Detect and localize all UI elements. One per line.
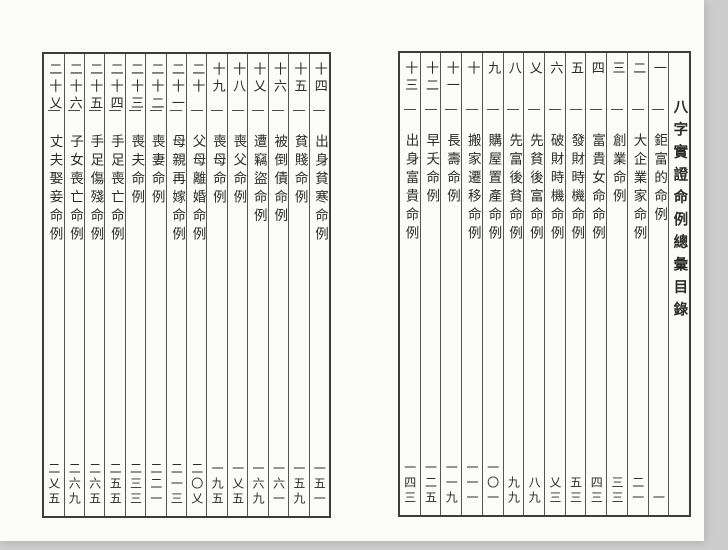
entry-chapter-number: 四	[590, 61, 603, 78]
entry-title: 喪母命例	[210, 134, 224, 208]
toc-page-right: 八字實證命例總彙目錄 一鉅富的命例一二大企業家命例二一三創業命例三三四富貴女命命…	[398, 51, 691, 517]
entry-page-number: 乂三	[549, 476, 561, 506]
entry-chapter-number: 十乂	[252, 62, 265, 96]
header-underline	[528, 109, 540, 110]
entry-title: 母親再嫁命例	[170, 134, 184, 245]
header-underline	[466, 109, 478, 110]
header-underline	[150, 110, 162, 111]
toc-entry-column: 二十四手足喪亡命例二五五	[104, 54, 124, 516]
entry-chapter-number: 八	[507, 61, 520, 78]
entry-chapter-number: 五	[569, 61, 582, 78]
entry-title: 先富後貧命例	[507, 133, 521, 244]
header-underline	[611, 109, 623, 110]
header-underline	[272, 110, 284, 111]
entry-chapter-number: 二十四	[109, 62, 122, 113]
toc-entry-column: 一鉅富的命例一	[648, 53, 669, 515]
header-underline	[170, 110, 182, 111]
header-underline	[425, 109, 437, 110]
header-underline	[313, 110, 325, 111]
toc-entry-column: 乂先貧後富命例八九	[523, 53, 544, 515]
toc-entry-column: 六破財時機命例乂三	[544, 53, 565, 515]
entry-title: 喪妻命例	[149, 134, 163, 208]
entry-title: 創業命例	[610, 133, 624, 207]
entry-title: 購屋置產命例	[486, 133, 500, 244]
toc-entry-column: 十搬家遷移命例一一一	[461, 53, 482, 515]
entry-chapter-number: 乂	[528, 61, 541, 78]
entry-title: 破財時機命例	[548, 133, 562, 244]
entry-title: 遭竊盜命例	[251, 134, 265, 227]
toc-entry-column: 二十六子女喪亡命例二六九	[64, 54, 84, 516]
entry-page-number: 一四三	[404, 461, 416, 506]
header-underline	[652, 109, 664, 110]
entry-chapter-number: 三	[610, 61, 623, 78]
entry-chapter-number: 十八	[231, 62, 244, 96]
entry-page-number: 一一一	[466, 461, 478, 506]
entry-page-number: 二三三	[129, 462, 141, 507]
header-underline	[404, 109, 416, 110]
toc-entry-column: 十一長壽命例一一九	[440, 53, 461, 515]
entry-page-number: 三三	[611, 476, 623, 506]
entry-page-number: 五三	[570, 476, 582, 506]
entry-title: 手足傷殘命例	[88, 134, 102, 245]
header-underline	[507, 109, 519, 110]
header-underline	[89, 110, 101, 111]
entry-title: 大企業家命例	[631, 133, 645, 244]
entry-chapter-number: 十一	[445, 61, 458, 95]
header-underline	[487, 109, 499, 110]
entry-chapter-number: 九	[486, 61, 499, 78]
entry-chapter-number: 二	[631, 61, 644, 78]
book-title-column: 八字實證命例總彙目錄	[668, 53, 689, 515]
header-underline	[445, 109, 457, 110]
toc-entry-column: 五發財時機命例五三	[565, 53, 586, 515]
entry-page-number: 一一九	[445, 461, 457, 506]
entry-page-number: 九九	[507, 476, 519, 506]
toc-entry-column: 二十三喪夫命例二三三	[125, 54, 145, 516]
entry-title: 喪父命例	[231, 134, 245, 208]
entry-title: 鉅富的命例	[652, 133, 666, 226]
header-underline	[632, 109, 644, 110]
entry-chapter-number: 六	[548, 61, 561, 78]
entry-page-number: 二一	[632, 476, 644, 506]
book-title: 八字實證命例總彙目錄	[672, 99, 687, 324]
entry-title: 出身貧寒命例	[313, 134, 327, 245]
toc-entry-column: 二十五手足傷殘命例二六五	[84, 54, 104, 516]
entry-page-number: 二二一	[150, 462, 162, 507]
header-underline	[129, 110, 141, 111]
entry-title: 發財時機命例	[569, 133, 583, 244]
toc-entry-column: 十四出身貧寒命例一五一	[309, 54, 329, 516]
toc-entry-column: 十三出身富貴命例一四三	[400, 53, 420, 515]
toc-page-left: 十四出身貧寒命例一五一十五貧賤命例一五九十六被倒債命例一六一十乂遭竊盜命例一六九…	[42, 52, 331, 518]
entry-page-number: 一五一	[313, 462, 325, 507]
entry-page-number: 一六九	[252, 462, 264, 507]
entry-page-number: 二〇乂	[191, 462, 203, 507]
entry-page-number: 一二五	[425, 461, 437, 506]
entry-page-number: 一乂五	[232, 462, 244, 507]
entry-title: 被倒債命例	[272, 134, 286, 227]
header-underline	[252, 110, 264, 111]
entry-chapter-number: 十六	[272, 62, 285, 96]
entry-page-number: 一五九	[293, 462, 305, 507]
entry-page-number: 一	[652, 491, 664, 506]
entry-chapter-number: 二十	[190, 62, 203, 96]
entry-title: 早夭命例	[424, 133, 438, 207]
header-underline	[109, 110, 121, 111]
entry-chapter-number: 十五	[292, 62, 305, 96]
entry-title: 喪夫命例	[129, 134, 143, 208]
entry-page-number: 二六九	[68, 462, 80, 507]
entry-title: 父母離婚命例	[190, 134, 204, 245]
entry-page-number: 一九五	[211, 462, 223, 507]
toc-entry-column: 十六被倒債命例一六一	[268, 54, 288, 516]
entry-chapter-number: 十三	[403, 61, 416, 95]
entry-chapter-number: 一	[652, 61, 665, 78]
toc-entry-column: 二十父母離婚命例二〇乂	[186, 54, 206, 516]
entry-page-number: 二六五	[89, 462, 101, 507]
entry-title: 出身富貴命例	[403, 133, 417, 244]
entry-title: 子女喪亡命例	[67, 134, 81, 245]
entry-page-number: 一六一	[272, 462, 284, 507]
entry-page-number: 八九	[528, 476, 540, 506]
entry-page-number: 二一三	[170, 462, 182, 507]
toc-entry-column: 二大企業家命例二一	[627, 53, 648, 515]
entry-chapter-number: 二十乂	[47, 62, 60, 113]
entry-chapter-number: 十	[465, 61, 478, 78]
header-underline	[549, 109, 561, 110]
entry-chapter-number: 二十五	[88, 62, 101, 113]
entry-title: 搬家遷移命例	[465, 133, 479, 244]
entry-page-number: 二乂五	[48, 462, 60, 507]
toc-entry-column: 二十二喪妻命例二二一	[145, 54, 165, 516]
entry-title: 先貧後富命例	[527, 133, 541, 244]
entry-chapter-number: 二十三	[129, 62, 142, 113]
entry-chapter-number: 十四	[313, 62, 326, 96]
entry-title: 丈夫娶妾命例	[47, 134, 61, 245]
entry-page-number: 二五五	[109, 462, 121, 507]
header-underline	[211, 110, 223, 111]
toc-entry-column: 二十一母親再嫁命例二一三	[166, 54, 186, 516]
header-underline	[68, 110, 80, 111]
header-underline	[48, 110, 60, 111]
toc-entry-column: 十乂遭竊盜命例一六九	[247, 54, 267, 516]
header-underline	[293, 110, 305, 111]
toc-entry-column: 十八喪父命例一乂五	[227, 54, 247, 516]
entry-chapter-number: 十九	[211, 62, 224, 96]
toc-entry-column: 十二早夭命例一二五	[420, 53, 441, 515]
header-underline	[232, 110, 244, 111]
entry-chapter-number: 二十六	[68, 62, 81, 113]
scanned-book-spread: 十四出身貧寒命例一五一十五貧賤命例一五九十六被倒債命例一六一十乂遭竊盜命例一六九…	[0, 0, 704, 541]
header-underline	[191, 110, 203, 111]
entry-title: 手足喪亡命例	[108, 134, 122, 245]
toc-entry-column: 四富貴女命命例四三	[585, 53, 606, 515]
toc-entry-column: 八先富後貧命例九九	[503, 53, 524, 515]
toc-entry-column: 二十乂丈夫娶妾命例二乂五	[44, 54, 63, 516]
toc-entry-column: 十五貧賤命例一五九	[288, 54, 308, 516]
entry-chapter-number: 二十一	[170, 62, 183, 113]
entry-chapter-number: 十二	[424, 61, 437, 95]
entry-chapter-number: 二十二	[149, 62, 162, 113]
toc-entry-column: 三創業命例三三	[606, 53, 627, 515]
entry-title: 長壽命例	[444, 133, 458, 207]
header-underline	[590, 109, 602, 110]
entry-page-number: 一〇一	[487, 461, 499, 506]
entry-title: 富貴女命命例	[590, 133, 604, 244]
toc-entry-column: 九購屋置產命例一〇一	[482, 53, 503, 515]
toc-entry-column: 十九喪母命例一九五	[206, 54, 226, 516]
header-underline	[570, 109, 582, 110]
entry-page-number: 四三	[590, 476, 602, 506]
entry-title: 貧賤命例	[292, 134, 306, 208]
